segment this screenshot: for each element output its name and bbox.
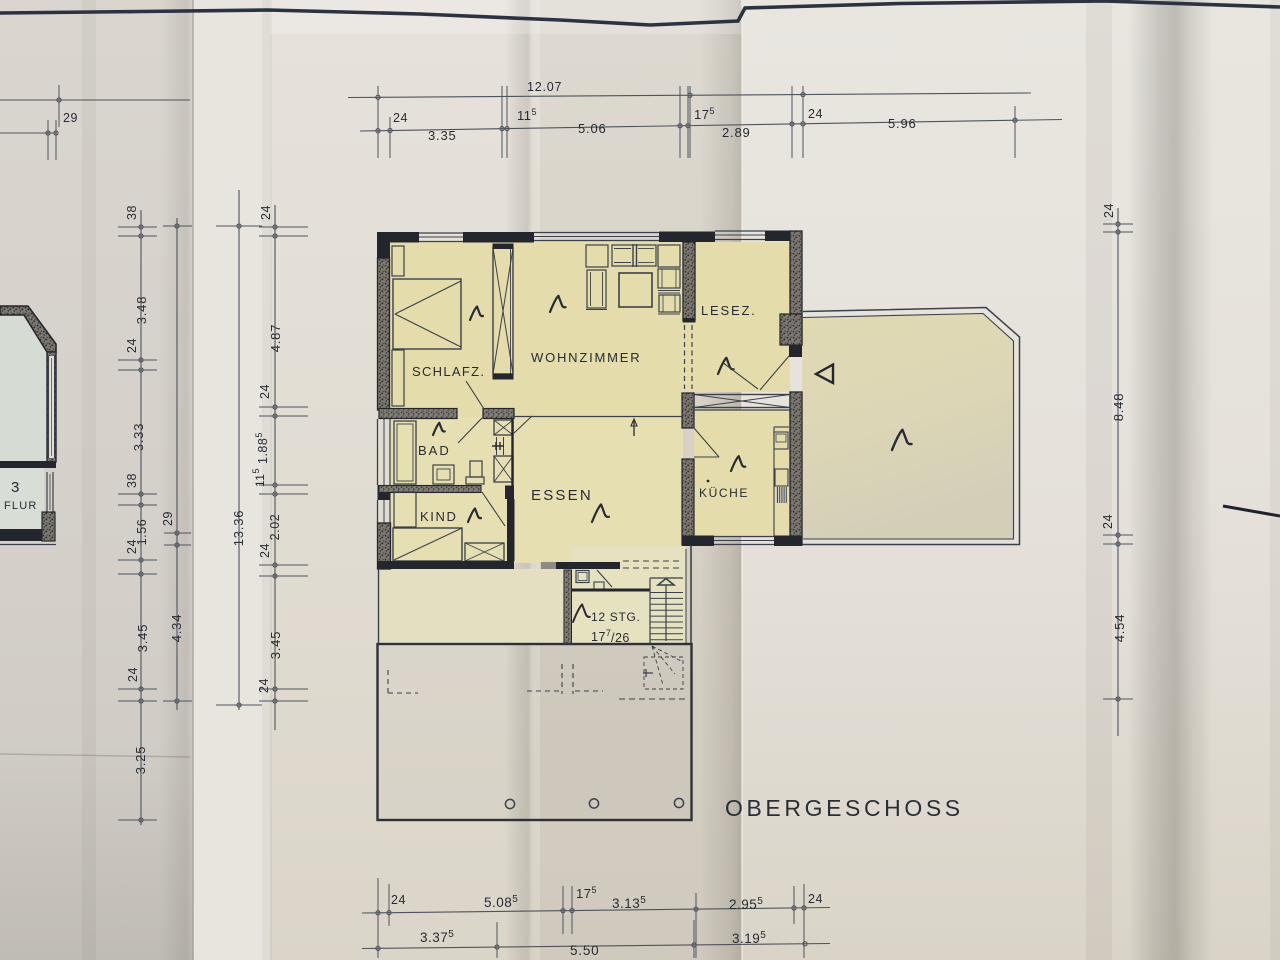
svg-text:SCHLAFZ.: SCHLAFZ.: [412, 364, 485, 379]
svg-text:12.07: 12.07: [527, 80, 562, 94]
svg-text:4.54: 4.54: [1112, 614, 1127, 643]
svg-text:24: 24: [125, 539, 139, 554]
svg-text:38: 38: [125, 473, 139, 488]
svg-text:3.25: 3.25: [133, 746, 148, 775]
svg-text:24: 24: [257, 678, 271, 693]
svg-text:5.96: 5.96: [888, 116, 917, 131]
svg-text:24: 24: [258, 384, 272, 399]
svg-text:BAD: BAD: [418, 443, 451, 458]
svg-text:24: 24: [126, 667, 140, 682]
svg-text:29: 29: [161, 511, 175, 526]
svg-text:3: 3: [11, 479, 20, 496]
svg-text:24: 24: [259, 205, 273, 220]
svg-text:3.48: 3.48: [134, 296, 149, 325]
svg-text:2.02: 2.02: [268, 514, 282, 541]
svg-text:5.50: 5.50: [570, 943, 599, 958]
svg-text:8.48: 8.48: [1111, 393, 1126, 422]
svg-text:24: 24: [258, 543, 272, 558]
svg-text:24: 24: [393, 111, 408, 125]
svg-text:24: 24: [1102, 203, 1116, 218]
svg-text:13.36: 13.36: [231, 510, 246, 547]
svg-text:3.33: 3.33: [131, 423, 146, 452]
svg-text:4.34: 4.34: [169, 614, 184, 643]
svg-text:WOHNZIMMER: WOHNZIMMER: [531, 350, 641, 365]
svg-text:12 STG.: 12 STG.: [591, 610, 641, 624]
svg-text:5.06: 5.06: [578, 121, 607, 136]
svg-text:38: 38: [125, 205, 139, 220]
svg-text:4.87: 4.87: [268, 324, 283, 353]
svg-text:29: 29: [63, 111, 78, 125]
svg-text:24: 24: [808, 892, 823, 906]
svg-text:FLUR: FLUR: [4, 500, 38, 512]
svg-text:3.45: 3.45: [268, 631, 283, 660]
svg-text:24: 24: [1101, 514, 1115, 529]
svg-text:2.89: 2.89: [722, 125, 751, 140]
svg-text:3.35: 3.35: [428, 128, 457, 143]
svg-text:24: 24: [125, 338, 139, 353]
svg-text:ESSEN: ESSEN: [531, 487, 593, 504]
svg-text:KIND: KIND: [420, 509, 457, 524]
svg-text:OBERGESCHOSS: OBERGESCHOSS: [725, 795, 964, 821]
svg-text:3.45: 3.45: [135, 624, 150, 653]
svg-text:24: 24: [808, 107, 823, 121]
svg-text:24: 24: [391, 893, 406, 907]
svg-text:KÜCHE: KÜCHE: [699, 486, 749, 500]
svg-text:LESEZ.: LESEZ.: [701, 303, 757, 318]
